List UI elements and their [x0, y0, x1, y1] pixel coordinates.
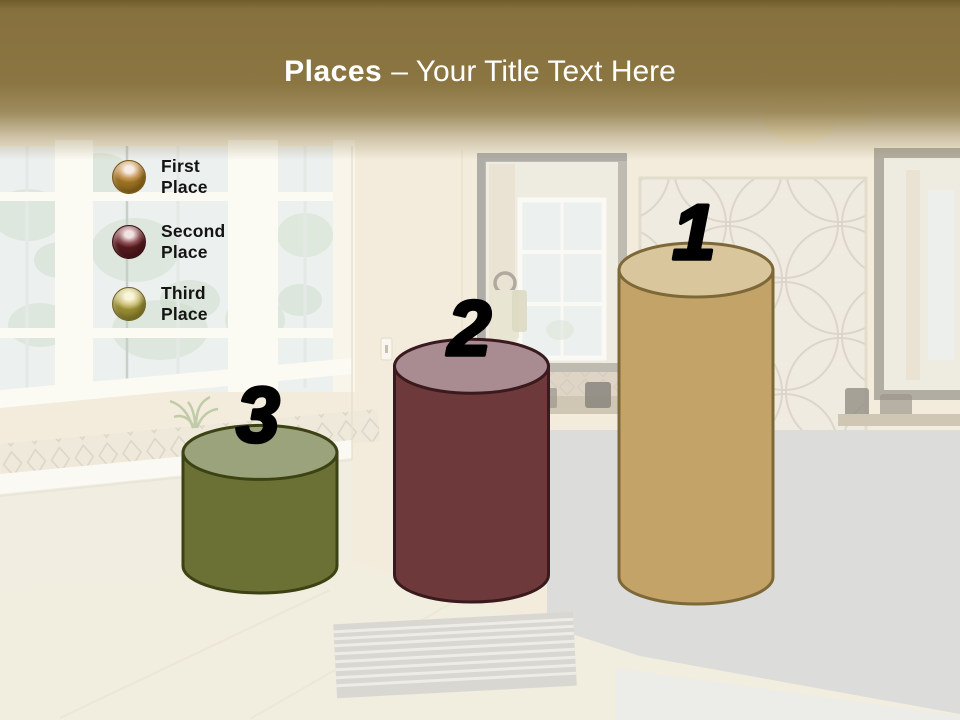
cylinder-body: [619, 270, 773, 604]
cylinder-body: [395, 366, 549, 602]
rank-number: 1: [672, 188, 715, 276]
podium-chart: 321: [0, 0, 960, 720]
presentation-slide: Places – Your Title Text Here First Plac…: [0, 0, 960, 720]
rank-number: 3: [236, 370, 279, 458]
rank-number: 2: [446, 284, 491, 372]
cylinder-first-place: 1: [619, 188, 773, 604]
cylinder-second-place: 2: [395, 284, 549, 602]
cylinder-third-place: 3: [183, 370, 337, 593]
